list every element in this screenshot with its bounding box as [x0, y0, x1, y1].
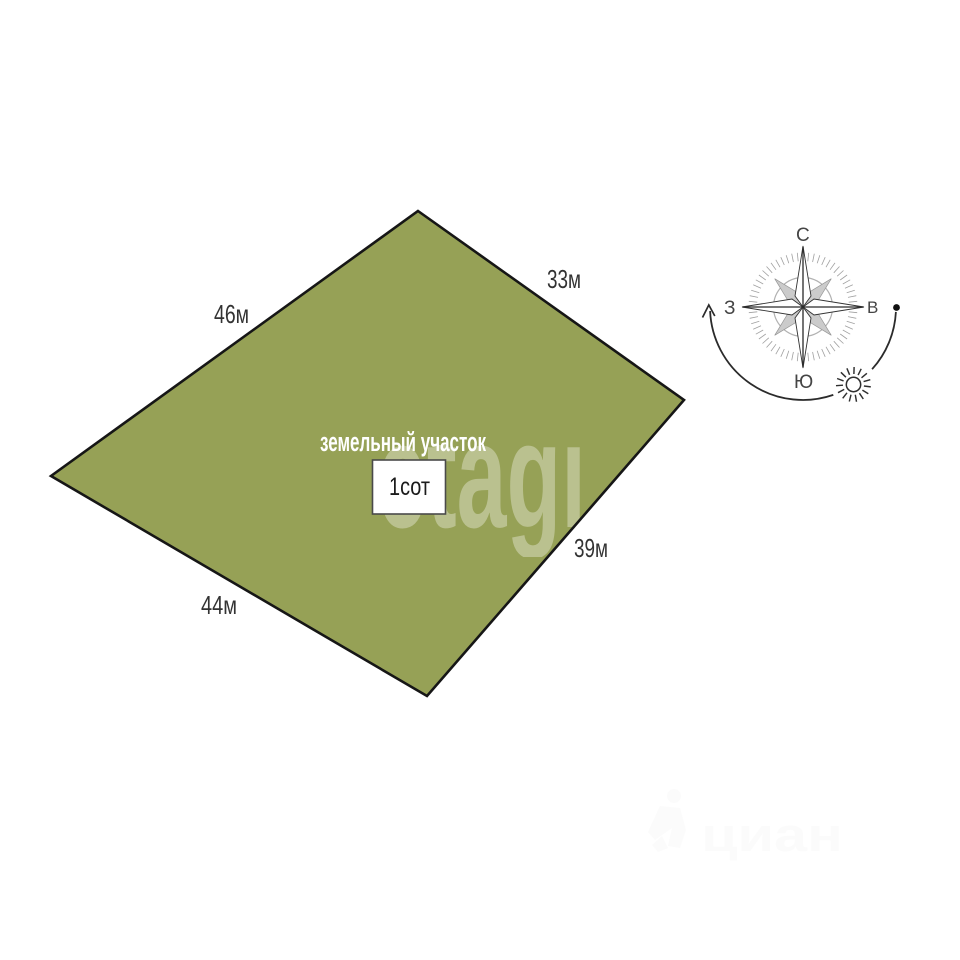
- svg-text:Ю: Ю: [794, 372, 813, 393]
- svg-text:44м: 44м: [201, 590, 237, 620]
- svg-text:З: З: [724, 298, 735, 319]
- svg-text:1сот: 1сот: [389, 473, 430, 501]
- svg-text:В: В: [867, 298, 878, 317]
- svg-text:39м: 39м: [574, 533, 608, 563]
- svg-text:циан: циан: [701, 808, 843, 861]
- svg-text:земельный участок: земельный участок: [320, 427, 486, 457]
- svg-text:33м: 33м: [547, 264, 581, 294]
- svg-text:С: С: [796, 225, 810, 246]
- svg-text:46м: 46м: [214, 299, 249, 329]
